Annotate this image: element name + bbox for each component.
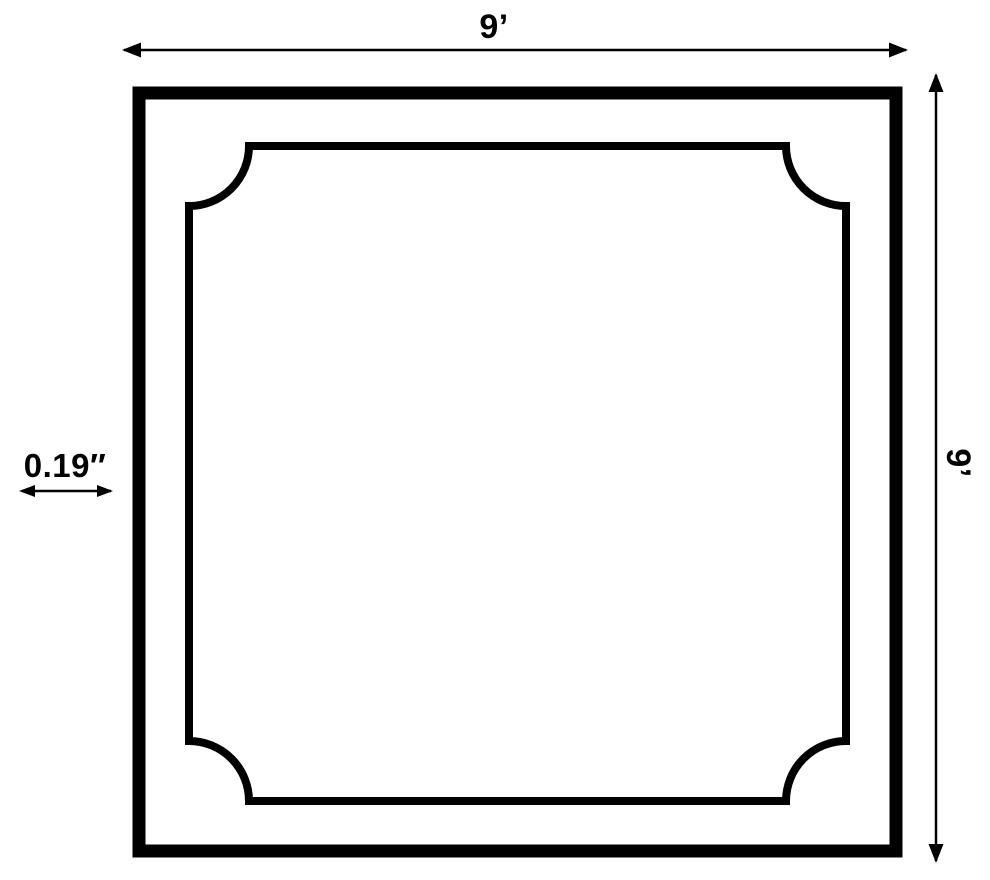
thickness-dimension-label: 0.19″ bbox=[24, 447, 107, 484]
arrowhead-left-icon bbox=[19, 485, 35, 497]
diagram-canvas: 9’ 9’ 0.19″ bbox=[0, 0, 990, 880]
dimension-diagram: 9’ 9’ 0.19″ bbox=[0, 0, 990, 880]
height-dimension: 9’ bbox=[929, 73, 978, 863]
height-dimension-label: 9’ bbox=[939, 448, 977, 477]
arrowhead-left-icon bbox=[122, 43, 141, 58]
width-dimension-label: 9’ bbox=[479, 8, 508, 46]
arrowhead-right-icon bbox=[889, 43, 908, 58]
outer-square-outline bbox=[139, 93, 896, 851]
arrowhead-up-icon bbox=[929, 73, 944, 92]
inner-panel-outline bbox=[189, 146, 846, 801]
thickness-dimension: 0.19″ bbox=[19, 447, 113, 497]
arrowhead-down-icon bbox=[929, 844, 944, 863]
arrowhead-right-icon bbox=[97, 485, 113, 497]
width-dimension: 9’ bbox=[122, 8, 908, 58]
